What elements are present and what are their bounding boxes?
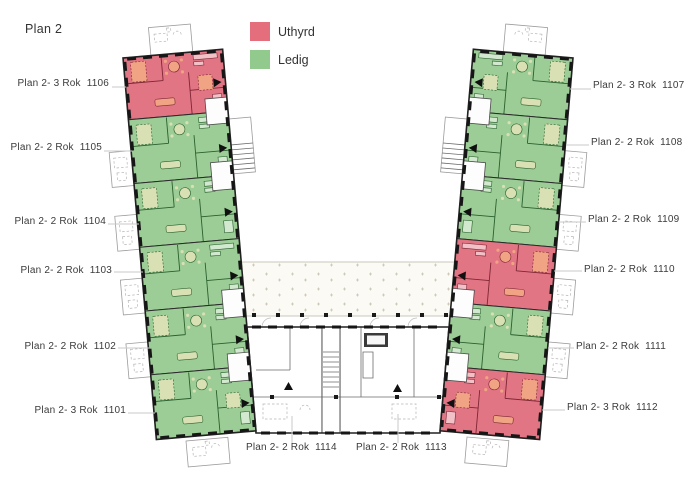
apartment-label-1112: Plan 2- 3 Rok 1112 (567, 402, 658, 413)
apartment-label-1104: Plan 2- 2 Rok 1104 (15, 216, 106, 227)
apartment-label-1109: Plan 2- 2 Rok 1109 (588, 214, 679, 225)
balcony (120, 278, 145, 315)
apartment-label-1105: Plan 2- 2 Rok 1105 (11, 142, 102, 153)
balcony (148, 24, 192, 56)
balcony (186, 437, 230, 467)
center-section (247, 327, 449, 433)
legend: Uthyrd Ledig (250, 22, 315, 78)
apartment-label-1101: Plan 2- 3 Rok 1101 (35, 405, 126, 416)
balcony (465, 437, 509, 467)
balcony (562, 151, 587, 188)
balcony (551, 278, 576, 315)
legend-label-uthyrd: Uthyrd (278, 25, 315, 39)
floorplan-svg (0, 0, 696, 492)
legend-item-ledig: Ledig (250, 50, 315, 69)
bathtub (364, 333, 388, 347)
apartment-label-1106: Plan 2- 3 Rok 1106 (18, 78, 109, 89)
balcony (109, 151, 134, 188)
balcony (556, 214, 581, 251)
courtyard (241, 262, 455, 327)
legend-item-uthyrd: Uthyrd (250, 22, 315, 41)
apartment-label-1103: Plan 2- 2 Rok 1103 (21, 265, 112, 276)
balcony (126, 342, 151, 379)
apartment-1113[interactable] (340, 327, 449, 433)
apartment-label-1110: Plan 2- 2 Rok 1110 (584, 264, 675, 275)
stairwell (322, 327, 340, 433)
balcony (115, 214, 140, 251)
apartment-label-1111: Plan 2- 2 Rok 1111 (576, 341, 666, 352)
apartment-1114[interactable] (247, 327, 322, 433)
floorplan-page: Plan 2 Uthyrd Ledig Plan 2- 3 Rok 1106 P… (0, 0, 696, 492)
apartment-label-1108: Plan 2- 2 Rok 1108 (591, 137, 682, 148)
legend-swatch-ledig (250, 50, 270, 69)
apartment-label-1107: Plan 2- 3 Rok 1107 (593, 80, 684, 91)
balcony (545, 342, 570, 379)
apartment-label-1102: Plan 2- 2 Rok 1102 (25, 341, 116, 352)
apartment-label-1113: Plan 2- 2 Rok 1113 (356, 442, 447, 453)
balcony (503, 24, 547, 56)
legend-label-ledig: Ledig (278, 53, 309, 67)
legend-swatch-uthyrd (250, 22, 270, 41)
page-title: Plan 2 (25, 22, 62, 36)
left-wing (99, 19, 278, 441)
right-wing (418, 19, 597, 441)
apartment-label-1114: Plan 2- 2 Rok 1114 (246, 442, 337, 453)
